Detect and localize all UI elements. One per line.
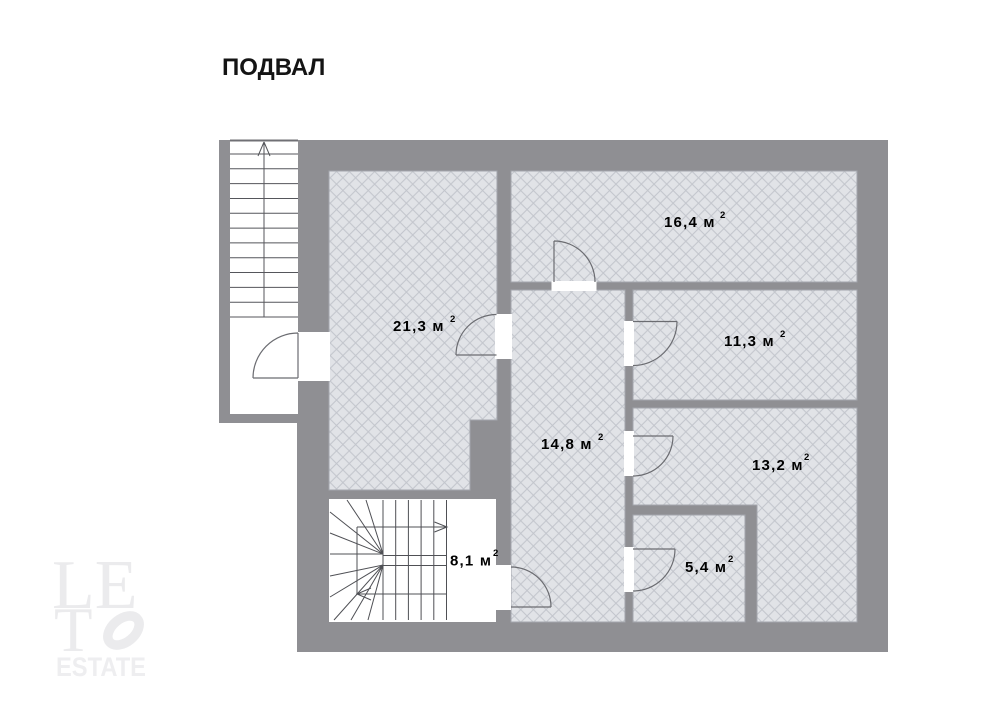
- svg-text:5,4 м: 5,4 м: [685, 559, 727, 576]
- svg-text:8,1 м: 8,1 м: [450, 553, 492, 570]
- svg-text:ПОДВАЛ: ПОДВАЛ: [222, 54, 325, 81]
- svg-text:2: 2: [720, 210, 725, 221]
- svg-text:ESTATE: ESTATE: [56, 652, 146, 682]
- svg-text:11,3 м: 11,3 м: [724, 333, 775, 350]
- svg-text:16,4 м: 16,4 м: [664, 214, 716, 231]
- svg-text:21,3 м: 21,3 м: [393, 318, 445, 335]
- svg-text:13,2 м: 13,2 м: [752, 457, 804, 474]
- svg-text:2: 2: [804, 452, 809, 463]
- svg-text:2: 2: [728, 554, 733, 565]
- svg-text:2: 2: [598, 432, 603, 443]
- svg-text:2: 2: [450, 314, 455, 325]
- svg-text:14,8 м: 14,8 м: [541, 436, 593, 453]
- svg-text:2: 2: [780, 329, 785, 340]
- svg-text:2: 2: [493, 548, 498, 559]
